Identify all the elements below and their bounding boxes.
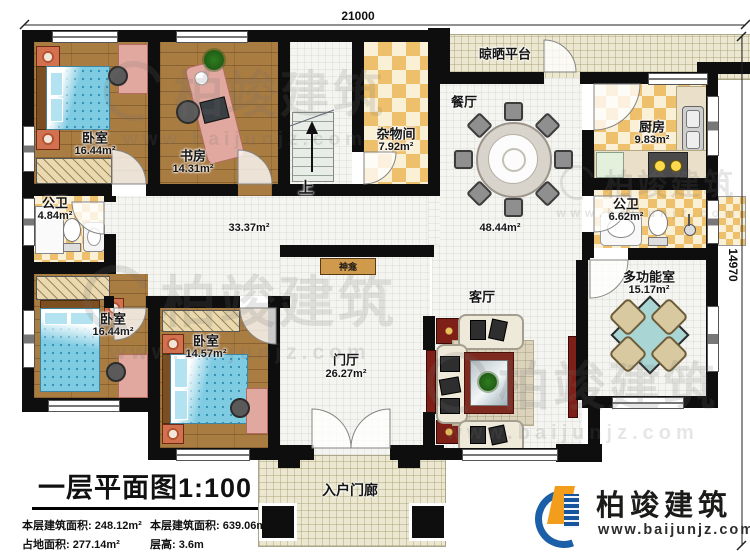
room-name-multifunction: 多功能室 — [623, 267, 675, 286]
door-arc — [72, 202, 104, 234]
brand-logo-icon — [534, 482, 592, 544]
room-name-bath-west: 公卫 — [42, 193, 68, 212]
door-arc — [112, 150, 146, 184]
room-area-bedroom-sw: 16.44m² — [93, 326, 134, 338]
room-name-bedroom-sw: 卧室 — [100, 309, 126, 328]
room-name-kitchen: 厨房 — [639, 117, 665, 136]
brand-url: www.baijunjz.com — [598, 522, 750, 538]
room-area-bedroom-nw: 16.44m² — [75, 145, 116, 157]
room-name-storage: 杂物间 — [376, 124, 415, 143]
dimension-right-height: 14970 — [726, 248, 740, 281]
door-arc — [594, 84, 640, 130]
area-hallway: 33.37m² — [229, 222, 270, 234]
room-name-foyer: 门厅 — [333, 350, 359, 369]
dimension-top-width: 21000 — [341, 9, 374, 23]
floor-plan-canvas: 神龛 — [0, 0, 750, 555]
title-block: 一层平面图1:100 本层建筑面积: 248.12m² 本层建筑面积: 639.… — [22, 466, 290, 552]
title-row2-col1: 占地面积: 277.14m² — [22, 536, 150, 552]
room-name-bedroom-south: 卧室 — [193, 331, 219, 350]
title-row2-col2: 层高: 3.6m — [150, 536, 290, 552]
door-arc — [364, 152, 396, 184]
plan-title: 一层平面图1:100 — [32, 466, 258, 510]
room-area-bedroom-south: 14.57m² — [186, 348, 227, 360]
entry-door-leaf — [312, 409, 351, 448]
room-area-multifunction: 15.17m² — [629, 284, 670, 296]
title-row1-col2: 本层建筑面积: 639.06m² — [150, 517, 290, 533]
door-arc — [240, 308, 276, 344]
room-name-bedroom-nw: 卧室 — [82, 128, 108, 147]
title-row1-col1: 本层建筑面积: 248.12m² — [22, 517, 150, 533]
entry-door-leaf — [351, 409, 390, 448]
room-name-living: 客厅 — [469, 287, 495, 306]
room-area-kitchen: 9.83m² — [635, 134, 670, 146]
room-name-drying-platform: 晾晒平台 — [479, 44, 531, 63]
room-area-study: 14.31m² — [173, 163, 214, 175]
brand-logo: 柏竣建筑 www.baijunjz.com — [534, 482, 750, 546]
room-name-study: 书房 — [180, 146, 206, 165]
stairs-up-label: 上 — [298, 177, 313, 198]
room-area-storage: 7.92m² — [379, 141, 414, 153]
stairs-arrow-head — [306, 121, 318, 134]
room-area-bath-west: 4.84m² — [38, 210, 73, 222]
brand-name: 柏竣建筑 — [596, 482, 732, 524]
room-name-bath-east: 公卫 — [613, 194, 639, 213]
room-area-foyer: 26.27m² — [326, 368, 367, 380]
door-arc — [238, 150, 272, 184]
room-name-dining: 餐厅 — [451, 92, 477, 111]
logo-building-blue-icon — [564, 494, 579, 528]
room-name-entry-porch: 入户门廊 — [322, 480, 378, 500]
door-arc — [544, 40, 576, 72]
area-dining-living: 48.44m² — [480, 222, 521, 234]
room-area-bath-east: 6.62m² — [609, 211, 644, 223]
